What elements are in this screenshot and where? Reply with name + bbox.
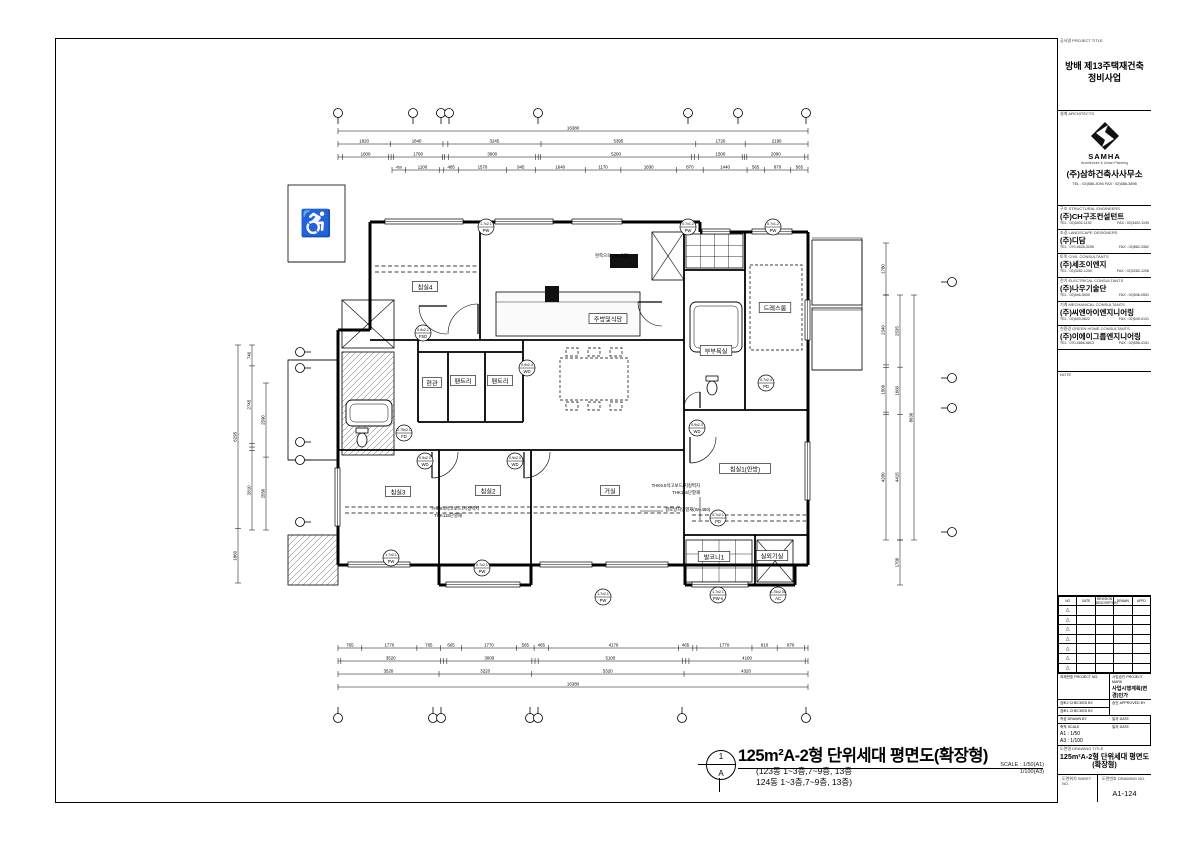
grid-bubble	[678, 714, 687, 723]
consultant-item: 전기 ELECTRICAL CONSULTANTS (주)나우기술단 TEL :…	[1058, 278, 1151, 302]
consultants-list: 구조 STRUCTURAL ENGINEERS (주)CH구조컨설턴트 TEL …	[1058, 206, 1151, 350]
dim-value: 1640	[555, 165, 565, 170]
tag-code: 0.7x1.2	[682, 222, 694, 226]
revision-marker: △	[1059, 644, 1077, 654]
checked2-label: 검토2 CHECKED BY	[1060, 701, 1093, 705]
dim-value: 4170	[609, 643, 619, 648]
room-label: 실외기실	[761, 552, 784, 560]
plain-area	[288, 360, 338, 460]
plan-note: 결로방지단열재(W=450)	[665, 506, 711, 513]
brand-subtitle: Architecture & Urban Planning	[1058, 161, 1151, 165]
dashed-fixture	[610, 348, 622, 356]
plan-note: 왼쪽으로 250 이동	[595, 252, 629, 259]
tag-code: 1.7x2.1	[385, 553, 397, 557]
project-title-header: 공사명 PROJECT TITLE	[1058, 38, 1151, 44]
detail-number: 1	[707, 752, 735, 761]
architects-header: 설계 ARCHITECTS	[1058, 111, 1151, 117]
dim-value: 5395	[614, 139, 624, 144]
revision-row: △	[1059, 644, 1151, 654]
dim-value: 2550	[261, 488, 266, 498]
tag-code: 1.7x2.1	[712, 590, 724, 594]
drawing-title-header: 도면명 DRAWING TITLE	[1058, 746, 1151, 752]
note-header: NOTE	[1058, 372, 1151, 378]
plan-note: THK115단열재	[672, 489, 700, 496]
dim-value: 465	[538, 643, 546, 648]
dashed-fixture	[588, 348, 600, 356]
revision-row: △	[1059, 653, 1151, 663]
revision-table: NODATEREVISION DESCRIPTIONDRAWNAPPD △△△△…	[1058, 596, 1151, 673]
checked1-label: 검토1 CHECKED BY	[1060, 709, 1093, 713]
toilet-tank	[356, 428, 368, 433]
dim-value: 16380	[567, 126, 580, 131]
room-label: 침실4	[418, 283, 433, 291]
dim-value: 3220	[480, 669, 490, 674]
project-no-label: 과제번호 PROJECT NO.	[1060, 675, 1098, 679]
grid-bubble	[534, 109, 543, 118]
dim-value: 1770	[384, 643, 394, 648]
dim-value: 5200	[611, 152, 621, 157]
grid-bubble	[437, 714, 446, 723]
hatch-area	[288, 535, 338, 585]
revision-marker: △	[1059, 625, 1077, 635]
plain-area	[812, 240, 862, 305]
scale-a3: A3 : 1/100	[1060, 738, 1108, 744]
tag-code: 0.7x2.4	[760, 378, 772, 382]
revision-col-header: REVISION DESCRIPTION	[1095, 597, 1113, 606]
dim-value: 740	[247, 351, 252, 359]
tag-type: PW	[388, 559, 395, 564]
plan-subtitle-1: (123동 1~3층,7~9층, 13층	[756, 766, 852, 777]
dim-value: 565	[796, 165, 804, 170]
dim-value: 565	[752, 165, 760, 170]
tag-code: 1.7x2.1	[597, 592, 609, 596]
dim-value: 870	[787, 643, 795, 648]
dim-value: 1820	[359, 139, 369, 144]
sheet-no-header: 도면위치 SHEET NO.	[1060, 776, 1095, 786]
grid-bubble	[296, 456, 305, 465]
grid-bubble	[409, 109, 418, 118]
drawn-label: 작성 DRAWN BY	[1060, 717, 1087, 721]
room-label: 주방및식당	[594, 315, 623, 323]
dim-value: 1660	[895, 385, 900, 395]
approval-section: 과제번호 PROJECT NO. 사업승인 PROJECT MARK사업시행계획…	[1058, 674, 1151, 746]
dim-value: 565	[522, 643, 530, 648]
dim-value: 6295	[233, 431, 238, 441]
toilet-tank	[706, 376, 718, 381]
grid-bubble	[296, 364, 305, 373]
dim-value: 1830	[644, 165, 654, 170]
grid-bubble	[334, 714, 343, 723]
dim-value: 2535	[895, 326, 900, 336]
grid-bubble	[445, 109, 454, 118]
drawing-no-header: 도면번호 DRAWING NO.	[1100, 776, 1149, 782]
grid-bubble	[948, 528, 957, 537]
revision-section: NODATEREVISION DESCRIPTIONDRAWNAPPD △△△△…	[1058, 596, 1151, 674]
dim-value: 1600	[361, 152, 371, 157]
dim-value: 3245	[490, 139, 500, 144]
room-label: 부부욕실	[705, 347, 728, 355]
grid-bubble	[802, 109, 811, 118]
tag-code: 0.9x2.3	[509, 456, 521, 460]
architect-name: (주)삼하건축사사무소	[1058, 168, 1151, 180]
dim-value: 765	[346, 643, 354, 648]
tag-code: 0.9x2.3	[419, 456, 431, 460]
dim-value: 870	[686, 165, 694, 170]
revision-row: △	[1059, 606, 1151, 616]
permit-label: 사업승인 PROJECT MARK	[1112, 675, 1143, 684]
tag-code: 0.7x1.2	[767, 222, 779, 226]
architects-section: 설계 ARCHITECTS SAMHA Architecture & Urban…	[1058, 111, 1151, 206]
detail-bubble: 1 A	[706, 750, 736, 780]
dim-value: 945	[517, 165, 525, 170]
plan-scale-a1: SCALE : 1/50(A1)	[1000, 762, 1044, 769]
drawing-title-line2: (확장형)	[1058, 761, 1151, 770]
revision-marker: △	[1059, 653, 1077, 663]
date-label2: 일자 DATE	[1112, 725, 1129, 729]
room-label: 거실	[604, 487, 616, 495]
plain-area	[812, 308, 862, 370]
dim-value: 5100	[606, 656, 616, 661]
dim-value: 3000	[487, 152, 497, 157]
floor-plan: ♿ 16380182018403245539517202190160017003…	[0, 0, 1191, 842]
revision-row: △	[1059, 663, 1151, 673]
note-section: NOTE	[1058, 372, 1151, 596]
grid-bubble	[296, 438, 305, 447]
toilet	[357, 433, 367, 447]
door-swing	[638, 302, 662, 326]
dim-value: 1770	[484, 643, 494, 648]
dim-value: 3000	[484, 656, 494, 661]
grid-bubble	[296, 348, 305, 357]
tag-code: 0.7x2.1	[712, 513, 724, 517]
grid-bubble	[334, 109, 343, 118]
dim-value: 4320	[741, 669, 751, 674]
room-label: 팬트리	[491, 377, 508, 385]
dim-value: 1500	[881, 384, 886, 394]
permit-text: 사업시행계획(변경)인가	[1112, 685, 1149, 699]
drawing-no: A1-124	[1100, 789, 1149, 798]
tag-type: FD	[401, 434, 407, 439]
revision-marker: △	[1059, 615, 1077, 625]
dim-value: 1700	[895, 557, 900, 567]
drawing-title-section: 도면명 DRAWING TITLE 125m²A-2형 단위세대 평면도 (확장…	[1058, 746, 1151, 775]
dim-value: 2340	[881, 325, 886, 335]
dim-value: 4200	[881, 472, 886, 482]
grid-bubble	[948, 278, 957, 287]
room-label: 침실1(안방)	[730, 465, 760, 473]
dim-value: 485	[448, 165, 456, 170]
grid-bubble	[948, 374, 957, 383]
detail-sheet: A	[707, 769, 735, 778]
revision-row: △	[1059, 625, 1151, 635]
tag-type: PD	[763, 384, 769, 389]
tag-type: WD	[694, 429, 701, 434]
project-title-section: 공사명 PROJECT TITLE 방배 제13주택재건축 정비사업	[1058, 38, 1151, 111]
room-label: 발코니1	[704, 553, 725, 561]
grid-bubble	[296, 518, 305, 527]
approved-label: 승인 APPROVED BY	[1112, 701, 1145, 705]
project-title: 방배 제13주택재건축 정비사업	[1058, 60, 1151, 84]
tag-type: PW	[685, 228, 692, 233]
consultant-item: 토목 CIVIL CONSULTANTS (주)세조이엔지 TEL : 02)3…	[1058, 254, 1151, 278]
dim-value: 1500	[716, 152, 726, 157]
tag-type: PW	[479, 569, 486, 574]
dim-value: 1570	[478, 165, 488, 170]
drawing-label: 1 A 125m²A-2형 단위세대 평면도(확장형) (123동 1~3층,7…	[698, 738, 1048, 800]
dim-value: 1100	[418, 165, 428, 170]
tag-type: WD	[512, 462, 519, 467]
dim-value: 1860	[233, 550, 238, 560]
dashed-fixture	[566, 402, 578, 410]
door-swing	[448, 304, 478, 334]
tag-type: PW	[483, 228, 490, 233]
plan-scale-a3: 1/100(A3)	[1000, 769, 1044, 776]
plan-note: THK9.5석고보드/지정벽지	[431, 505, 479, 512]
door-swing	[690, 437, 716, 463]
revision-row: △	[1059, 634, 1151, 644]
room-label: 팬트리	[454, 377, 471, 385]
dim-value: 765	[425, 643, 433, 648]
tag-code: 0.9x2.3	[691, 423, 703, 427]
samha-logo	[1090, 121, 1120, 151]
dim-value: 2745	[247, 399, 252, 409]
room-label: 현관	[426, 379, 438, 387]
tag-type: WD	[422, 462, 429, 467]
revision-marker: △	[1059, 634, 1077, 644]
dim-value: 1840	[412, 139, 422, 144]
consultant-item: 조경 LANDSCAPE DESIGNERS (주)디담 TEL : 070-4…	[1058, 230, 1151, 254]
room-label: 드레스룸	[764, 304, 787, 312]
door-swing	[524, 452, 550, 478]
dim-value: 2590	[261, 415, 266, 425]
dim-value: 1770	[720, 643, 730, 648]
revision-row: △	[1059, 615, 1151, 625]
consultant-item: 친환경 GREEN HOME CONSULTANTS (주)이에이그룹엔지니어링…	[1058, 326, 1151, 350]
revision-marker: △	[1059, 606, 1077, 616]
door-swing	[684, 392, 700, 408]
dim-value: 810	[761, 643, 769, 648]
dim-value: 665	[447, 643, 455, 648]
dim-value: 8630	[909, 412, 914, 422]
dim-value: 465	[682, 643, 690, 648]
dim-value: 3520	[386, 656, 396, 661]
tag-code: 1.7x2.1	[480, 222, 492, 226]
revision-col-header: DATE	[1077, 597, 1095, 606]
brand-name: SAMHA	[1058, 152, 1151, 161]
tag-code: 0.9x2.1	[417, 328, 429, 332]
dashed-fixture	[560, 358, 628, 400]
consultant-item: 기계 MECHANICAL CONSULTANTS (주)씨엔아이엔지니어링 T…	[1058, 302, 1151, 326]
toilet	[707, 381, 717, 395]
appliance	[545, 286, 559, 302]
dashed-fixture	[610, 402, 622, 410]
architect-contact: TEL : 02)586-3094 FAX : 02)586-3898	[1058, 182, 1151, 186]
room-label: 침실2	[481, 487, 496, 495]
tag-code: 0.9x2.4	[521, 363, 533, 367]
dim-value: 4415	[895, 472, 900, 482]
title-block: 공사명 PROJECT TITLE 방배 제13주택재건축 정비사업 설계 AR…	[1057, 38, 1151, 803]
dim-value: 3520	[384, 669, 394, 674]
dim-value: 2810	[247, 485, 252, 495]
drawing-sheet: ♿ 16380182018403245539517202190160017003…	[0, 0, 1191, 842]
tag-code: 0.75x2.05	[770, 590, 786, 594]
dim-value: 1780	[881, 264, 886, 274]
tag-type: PW-s	[713, 596, 723, 601]
grid-bubble	[802, 714, 811, 723]
date-label: 일자 DATE	[1112, 717, 1129, 721]
dim-value: 1720	[716, 139, 726, 144]
tag-type: FSD	[419, 334, 427, 339]
grid-bubble	[734, 109, 743, 118]
dim-value: 5320	[603, 669, 613, 674]
dim-value: 16380	[567, 682, 580, 687]
room-label: 침실3	[391, 488, 406, 496]
dim-value: 1440	[720, 165, 730, 170]
dim-value: 1700	[413, 152, 423, 157]
grid-bubble	[684, 109, 693, 118]
spare-section	[1058, 350, 1151, 372]
bathtub	[690, 302, 742, 352]
tag-type: PW	[600, 598, 607, 603]
dim-value: 1170	[598, 165, 608, 170]
tag-code: 0.75x2.1	[397, 428, 411, 432]
revision-col-header: APPD	[1132, 597, 1150, 606]
dim-value: 870	[774, 165, 782, 170]
dashed-fixture	[588, 402, 600, 410]
tag-type: WD	[524, 369, 531, 374]
dim-value: 2000	[771, 152, 781, 157]
tag-type: AC	[775, 596, 781, 601]
scale-a1: A1 : 1/50	[1060, 731, 1108, 737]
dim-value: 450	[396, 166, 402, 170]
plan-note: THK115단열재	[434, 512, 462, 519]
revision-col-header: NO	[1059, 597, 1077, 606]
tag-type: PW	[770, 228, 777, 233]
wheelchair-icon: ♿	[300, 208, 332, 238]
plan-note: THK9.5석고보드/지정벽지	[652, 482, 700, 489]
consultant-item: 구조 STRUCTURAL ENGINEERS (주)CH구조컨설턴트 TEL …	[1058, 206, 1151, 230]
dim-value: 2190	[772, 139, 782, 144]
revision-marker: △	[1059, 663, 1077, 673]
tag-code: 0.7x2.1	[476, 563, 488, 567]
grid-bubble	[534, 714, 543, 723]
scale-label: 축척 SCALE	[1060, 725, 1079, 729]
grid-bubble	[948, 404, 957, 413]
dashed-fixture	[566, 348, 578, 356]
plan-subtitle-2: 124동 1~3층,7~9층, 13층)	[756, 777, 852, 788]
plan-title: 125m²A-2형 단위세대 평면도(확장형)	[738, 742, 1043, 769]
drawing-no-section: 도면위치 SHEET NO. 도면번호 DRAWING NO. A1-124	[1058, 775, 1151, 802]
dim-value: 4100	[742, 656, 752, 661]
door-swing	[432, 452, 458, 478]
tag-type: PD	[715, 519, 721, 524]
